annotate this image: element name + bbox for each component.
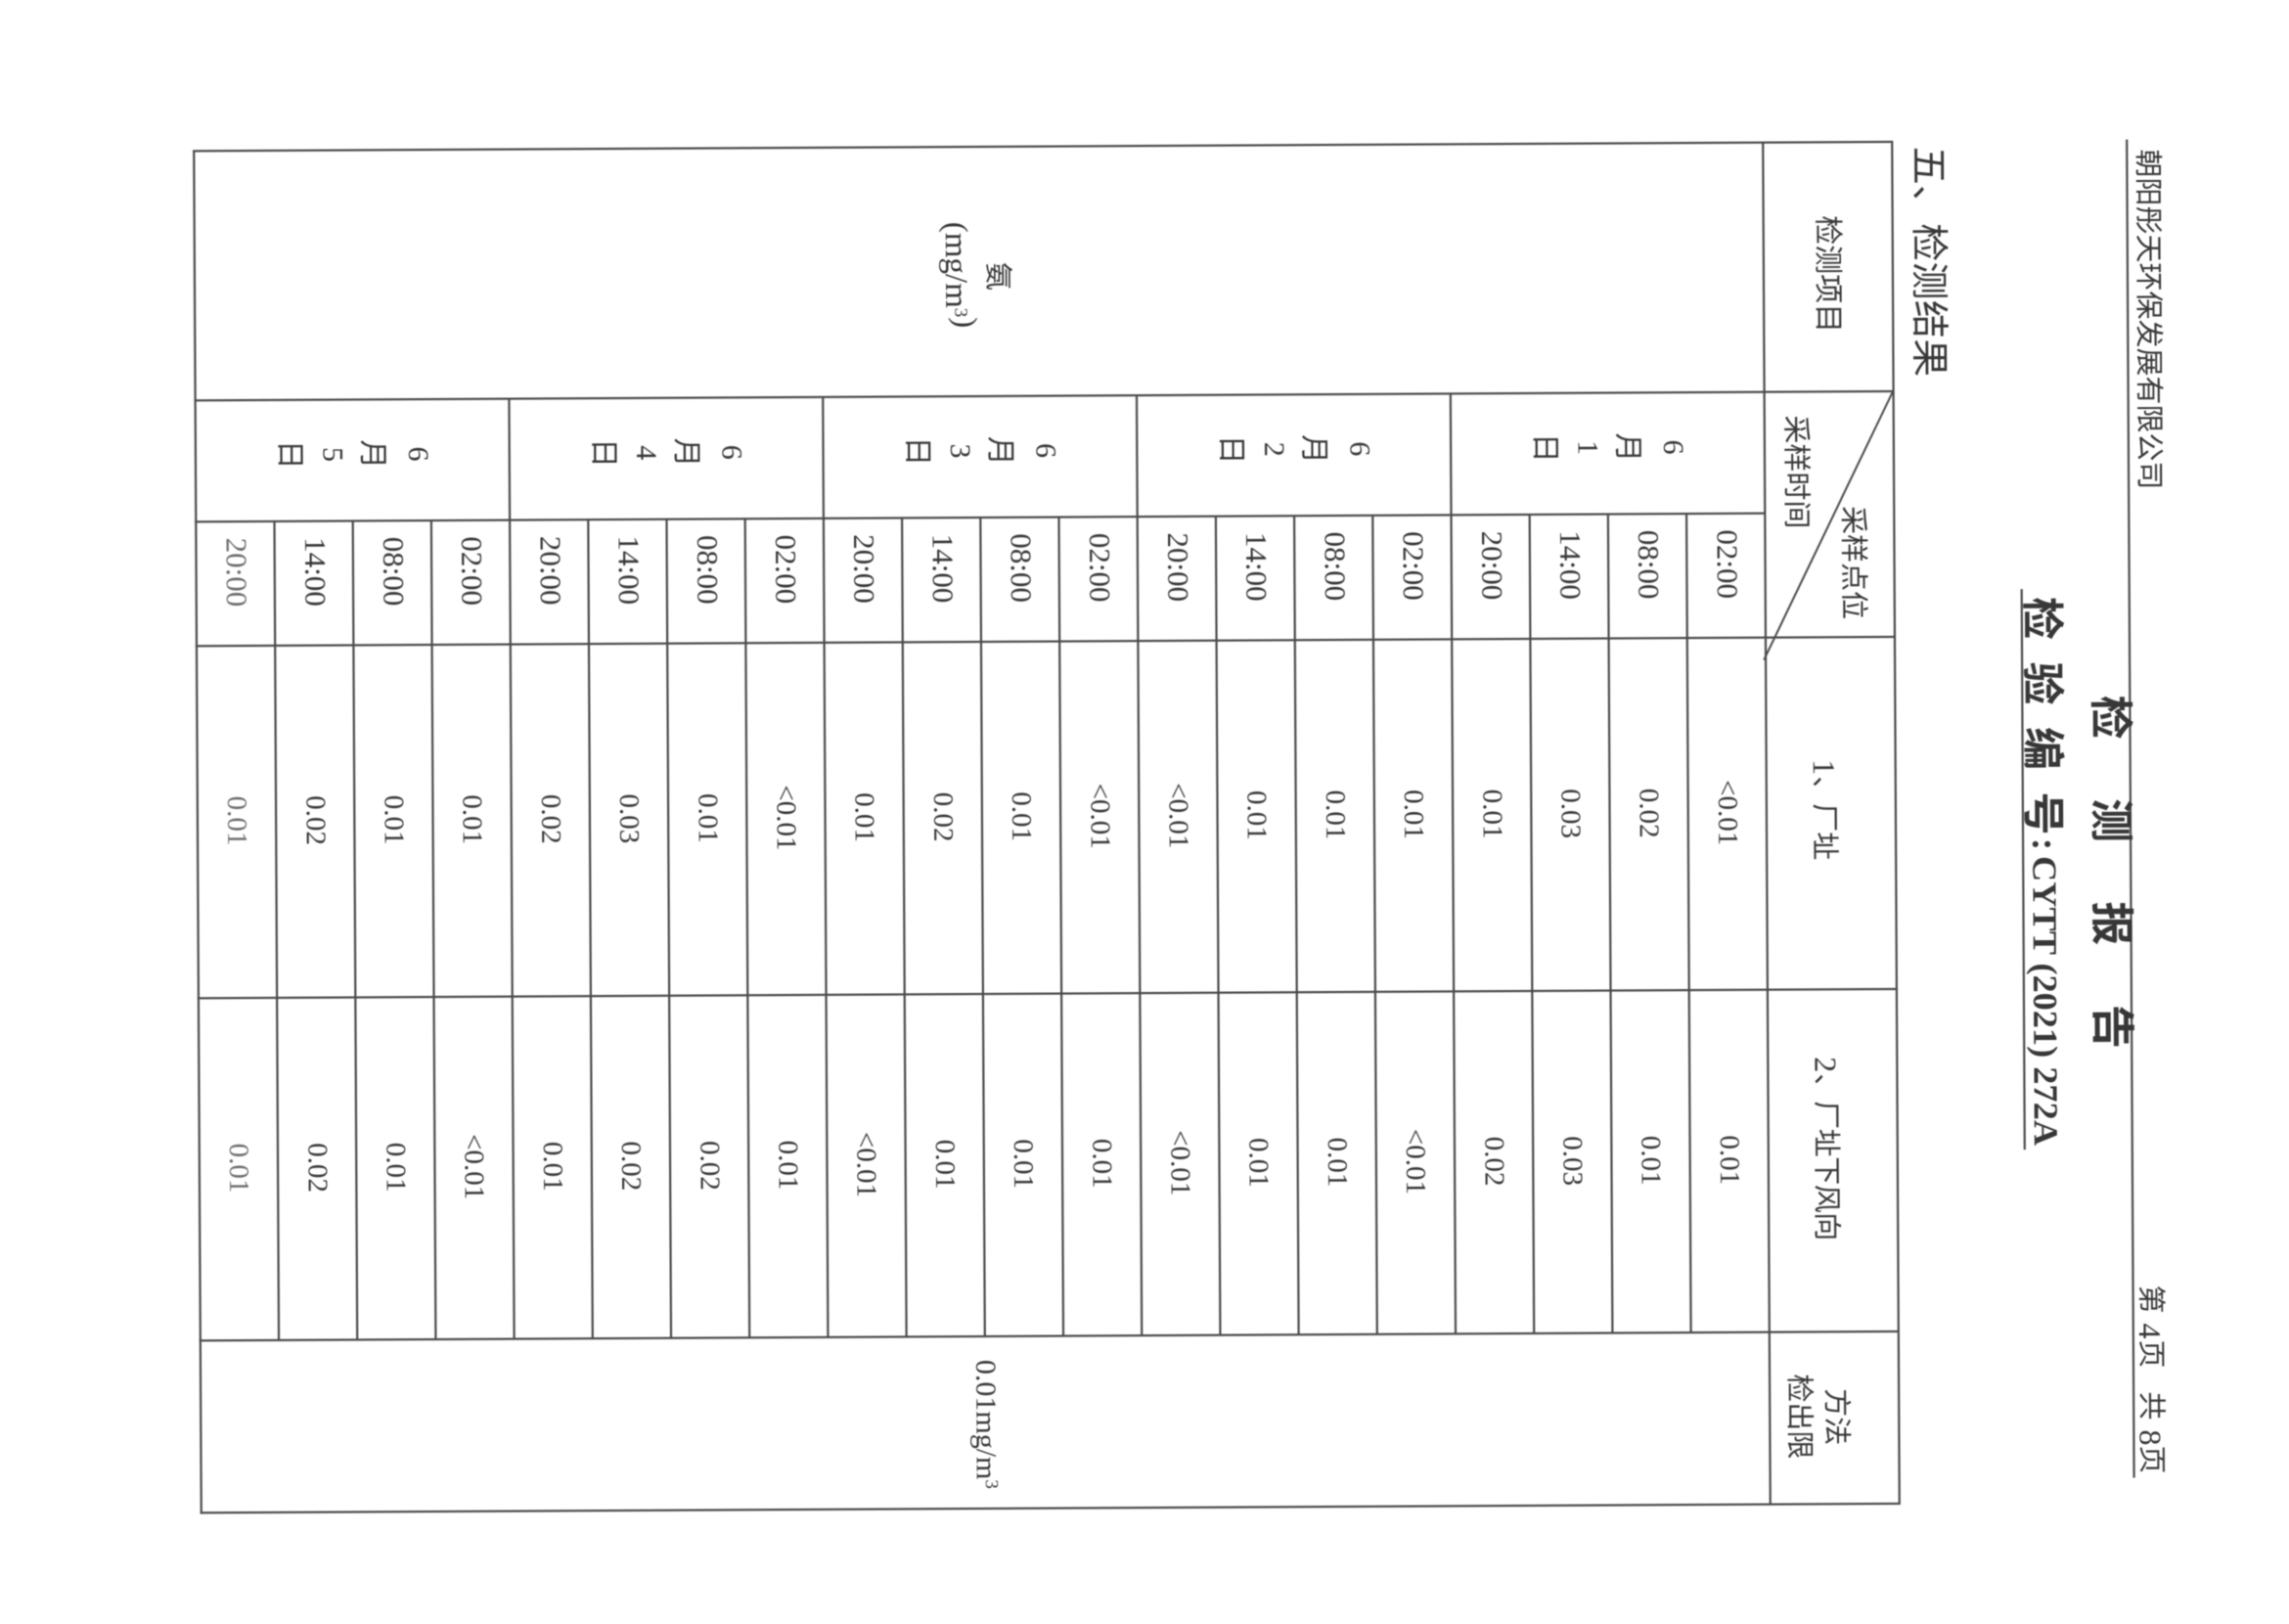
svg-text:6: 6 bbox=[1343, 441, 1375, 456]
svg-text:<0.01: <0.01 bbox=[1164, 1130, 1195, 1195]
svg-text:8: 8 bbox=[2132, 1429, 2168, 1445]
svg-text:6: 6 bbox=[1029, 443, 1061, 458]
svg-text:0.01: 0.01 bbox=[221, 796, 252, 846]
svg-text:02:00: 02:00 bbox=[1710, 529, 1744, 599]
svg-text:0.01: 0.01 bbox=[1008, 1139, 1039, 1189]
svg-text:0.03: 0.03 bbox=[1554, 789, 1586, 838]
svg-text:0.01mg/m3: 0.01mg/m3 bbox=[969, 1360, 1003, 1489]
svg-text:08:00: 08:00 bbox=[691, 535, 725, 605]
svg-text:0.01: 0.01 bbox=[378, 795, 409, 845]
svg-text:0.01: 0.01 bbox=[772, 1141, 803, 1191]
svg-text:02:00: 02:00 bbox=[455, 536, 489, 606]
svg-text:14:00: 14:00 bbox=[1553, 530, 1588, 600]
svg-text:20:00: 20:00 bbox=[1161, 532, 1195, 602]
svg-text:0.01: 0.01 bbox=[929, 1140, 961, 1190]
svg-text:1: 1 bbox=[1572, 440, 1604, 455]
svg-text:0.01: 0.01 bbox=[1636, 1136, 1667, 1186]
svg-text:CYTT (2021) 272A: CYTT (2021) 272A bbox=[2025, 856, 2065, 1147]
svg-text:2: 2 bbox=[1808, 1057, 1843, 1072]
svg-text:0.01: 0.01 bbox=[692, 793, 723, 843]
svg-text:0.01: 0.01 bbox=[1320, 789, 1351, 839]
svg-text:<0.01: <0.01 bbox=[458, 1134, 489, 1199]
svg-text:0.02: 0.02 bbox=[1634, 789, 1665, 838]
svg-text:08:00: 08:00 bbox=[377, 537, 411, 607]
svg-text:6: 6 bbox=[1657, 439, 1689, 454]
svg-text:(mg/m3): (mg/m3) bbox=[938, 222, 983, 329]
svg-text:<0.01: <0.01 bbox=[1400, 1129, 1431, 1195]
svg-text:0.01: 0.01 bbox=[457, 794, 488, 844]
svg-text:4: 4 bbox=[2132, 1323, 2168, 1338]
svg-text:0.01: 0.01 bbox=[1476, 789, 1507, 839]
svg-text:0.01: 0.01 bbox=[1398, 789, 1429, 839]
svg-text:08:00: 08:00 bbox=[1632, 530, 1666, 600]
svg-text:0.02: 0.02 bbox=[927, 792, 959, 842]
svg-text:08:00: 08:00 bbox=[1318, 532, 1352, 602]
svg-text:0.02: 0.02 bbox=[615, 1141, 647, 1191]
svg-text:3: 3 bbox=[944, 443, 976, 458]
svg-text:1: 1 bbox=[1807, 759, 1842, 775]
svg-text:<0.01: <0.01 bbox=[1162, 783, 1193, 848]
svg-text:20:00: 20:00 bbox=[533, 536, 567, 606]
svg-text:2: 2 bbox=[1258, 442, 1290, 457]
svg-text:0.02: 0.02 bbox=[1478, 1137, 1509, 1187]
svg-text:<0.01: <0.01 bbox=[1712, 780, 1743, 845]
svg-text:<0.01: <0.01 bbox=[1084, 784, 1115, 849]
svg-text:02:00: 02:00 bbox=[769, 535, 803, 605]
svg-text:0.01: 0.01 bbox=[1243, 1138, 1275, 1188]
svg-text:0.03: 0.03 bbox=[613, 793, 645, 843]
svg-text:14:00: 14:00 bbox=[925, 534, 960, 604]
svg-text:0.02: 0.02 bbox=[694, 1141, 725, 1191]
svg-text:20:00: 20:00 bbox=[1475, 531, 1509, 601]
svg-text:0.01: 0.01 bbox=[380, 1143, 411, 1193]
svg-text::: : bbox=[2024, 838, 2065, 851]
svg-text:0.01: 0.01 bbox=[223, 1144, 254, 1194]
svg-text:6: 6 bbox=[402, 446, 434, 461]
svg-text:20:00: 20:00 bbox=[847, 534, 881, 604]
svg-text:08:00: 08:00 bbox=[1005, 533, 1039, 603]
svg-text:14:00: 14:00 bbox=[1239, 532, 1274, 602]
svg-text:0.03: 0.03 bbox=[1556, 1136, 1588, 1186]
svg-text:20:00: 20:00 bbox=[220, 538, 254, 608]
svg-text:5: 5 bbox=[316, 447, 348, 462]
svg-text:0.02: 0.02 bbox=[301, 1143, 333, 1193]
svg-text:0.01: 0.01 bbox=[1006, 791, 1037, 841]
svg-text:02:00: 02:00 bbox=[1083, 533, 1117, 603]
svg-text:14:00: 14:00 bbox=[612, 535, 647, 605]
svg-text:<0.01: <0.01 bbox=[770, 785, 801, 850]
svg-text:4: 4 bbox=[630, 445, 662, 460]
svg-text:0.01: 0.01 bbox=[1241, 790, 1273, 840]
svg-text:14:00: 14:00 bbox=[298, 537, 333, 607]
svg-text:<0.01: <0.01 bbox=[850, 1132, 881, 1197]
svg-text:0.02: 0.02 bbox=[535, 794, 566, 844]
svg-text:0.01: 0.01 bbox=[537, 1142, 568, 1192]
svg-text:0.01: 0.01 bbox=[1322, 1137, 1353, 1187]
svg-text:6: 6 bbox=[716, 445, 748, 460]
svg-text:02:00: 02:00 bbox=[1397, 531, 1431, 601]
svg-text:0.01: 0.01 bbox=[1714, 1135, 1745, 1185]
svg-text:0.01: 0.01 bbox=[1086, 1139, 1117, 1189]
svg-text:0.01: 0.01 bbox=[849, 792, 880, 842]
svg-text:0.02: 0.02 bbox=[299, 795, 331, 845]
